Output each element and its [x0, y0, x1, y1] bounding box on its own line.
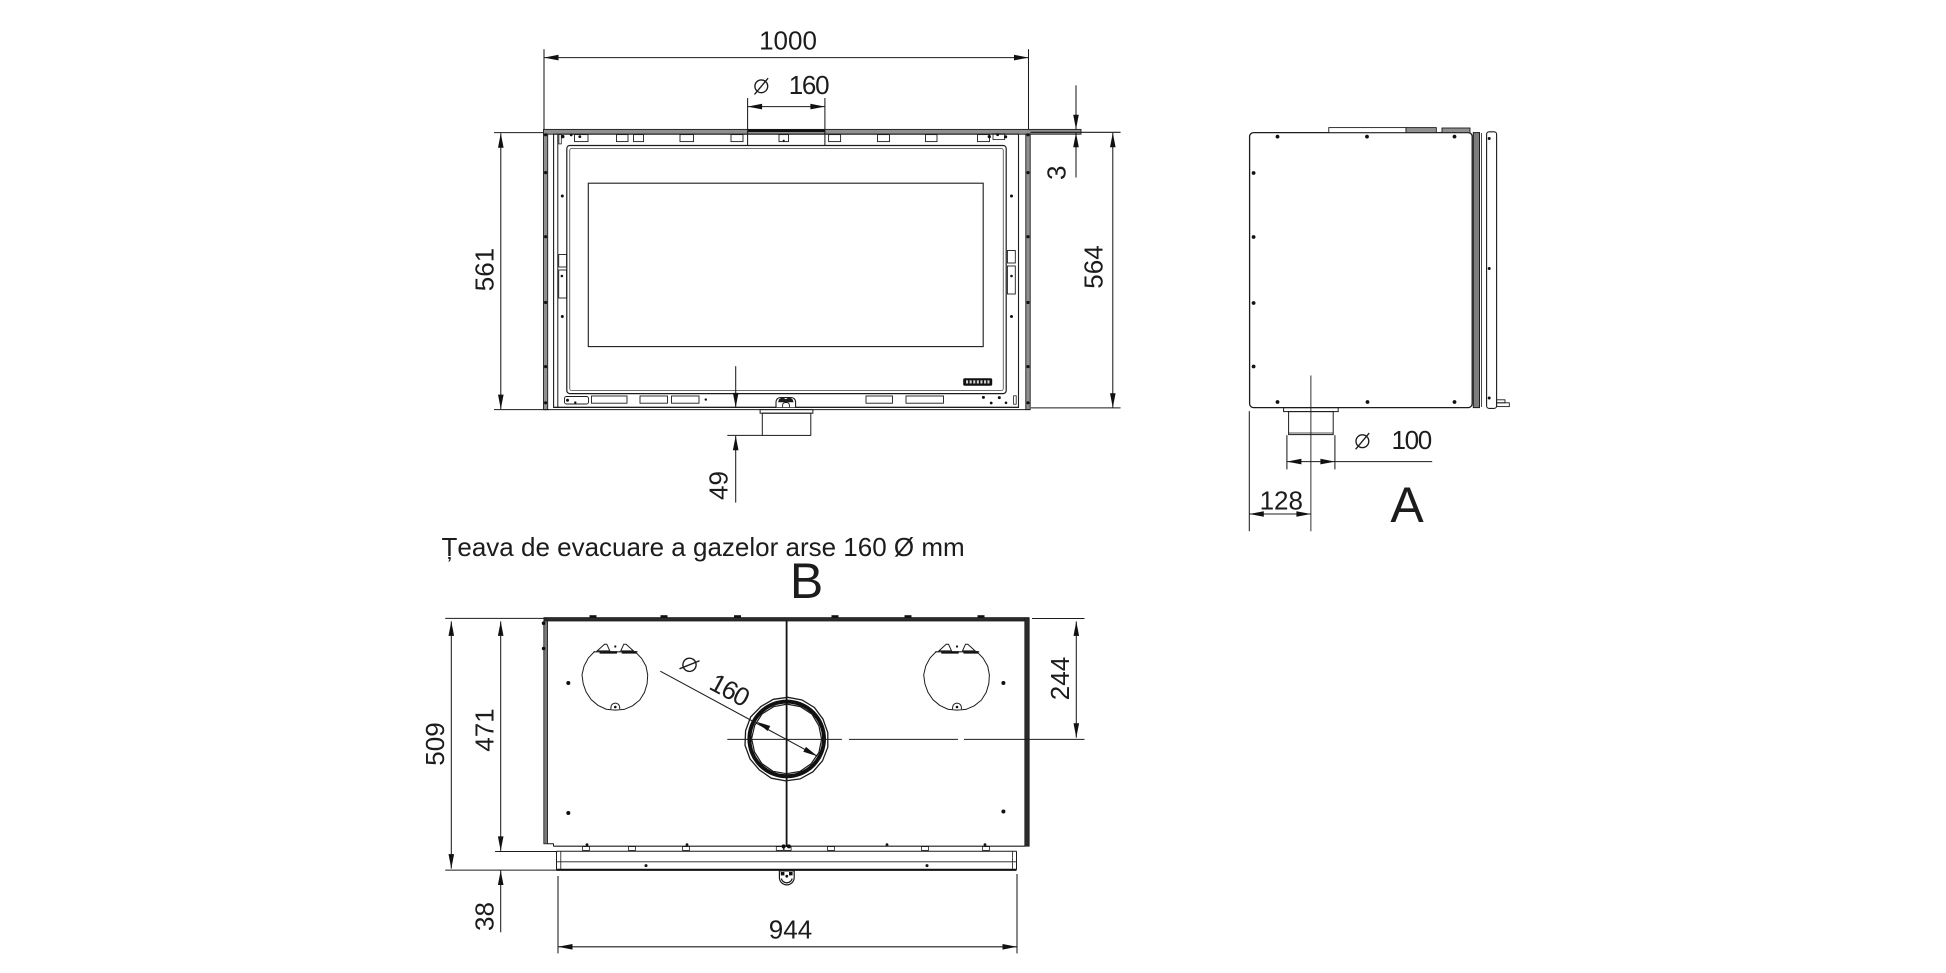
svg-text:509: 509 [420, 722, 450, 765]
svg-text:A: A [1390, 477, 1424, 533]
svg-text:561: 561 [470, 248, 500, 291]
svg-text:160: 160 [789, 70, 829, 100]
svg-text:1000: 1000 [759, 25, 817, 55]
svg-text:38: 38 [470, 902, 500, 931]
svg-text:Țeava de evacuare a gazelor ar: Țeava de evacuare a gazelor arse 160 Ø m… [442, 532, 965, 562]
svg-text:B: B [790, 553, 823, 609]
svg-text:100: 100 [1391, 425, 1431, 455]
svg-text:244: 244 [1045, 657, 1075, 700]
svg-text:128: 128 [1260, 486, 1303, 516]
svg-text:3: 3 [1041, 166, 1071, 180]
svg-text:49: 49 [704, 471, 734, 500]
svg-text:944: 944 [769, 915, 812, 945]
svg-text:564: 564 [1079, 245, 1109, 288]
svg-text:471: 471 [470, 708, 500, 751]
